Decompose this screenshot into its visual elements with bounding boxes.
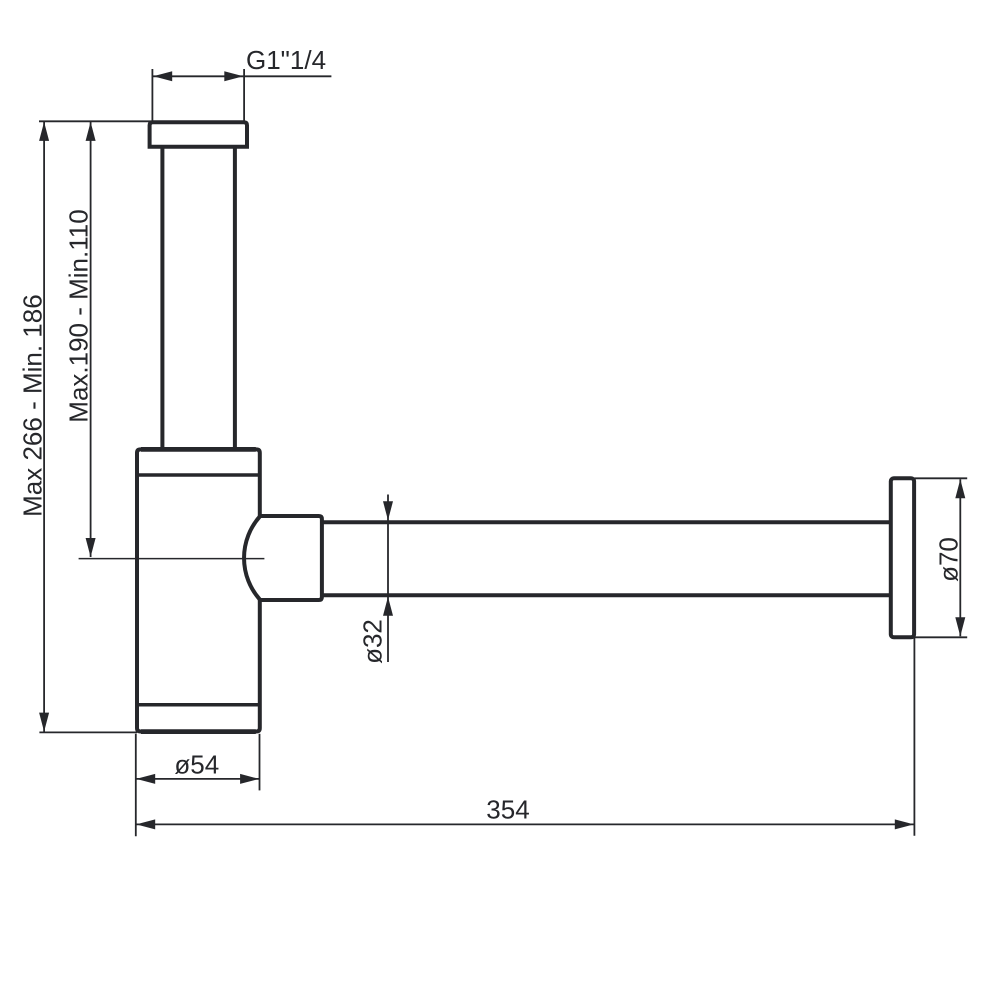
svg-text:Max 266 - Min. 186: Max 266 - Min. 186 — [18, 294, 48, 517]
svg-text:ø54: ø54 — [174, 749, 219, 779]
svg-text:ø70: ø70 — [934, 537, 964, 582]
svg-text:ø32: ø32 — [358, 619, 388, 664]
svg-text:Max.190 - Min.110: Max.190 - Min.110 — [64, 209, 94, 422]
svg-text:G1"1/4: G1"1/4 — [246, 45, 326, 75]
svg-text:354: 354 — [486, 795, 529, 825]
